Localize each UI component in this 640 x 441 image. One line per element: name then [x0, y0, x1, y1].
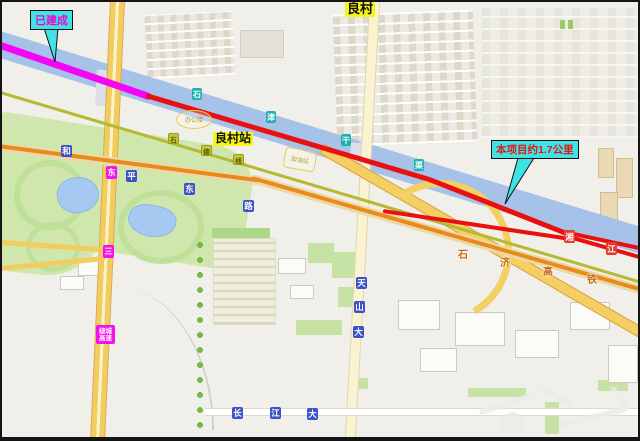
- building: [515, 330, 559, 358]
- canal-name-badge: 渠: [414, 159, 424, 171]
- railway-name-badge: 德: [201, 145, 212, 156]
- village-label: 良村: [345, 2, 375, 17]
- gas-station-poi-label: 加油站: [290, 154, 309, 166]
- project-callout: 本项目约1.7公里: [491, 140, 579, 159]
- lawn: [468, 388, 526, 397]
- road-name-badge: 长: [232, 407, 243, 419]
- road-name-badge: 路: [243, 200, 254, 212]
- street-name-badge: 山: [354, 301, 365, 313]
- hsr-name-char: 高: [543, 263, 553, 278]
- building: [598, 148, 614, 178]
- tree-strip: [212, 228, 270, 238]
- office-poi: 办公楼: [176, 110, 212, 129]
- lawn: [308, 243, 334, 263]
- building: [60, 276, 84, 290]
- building: [616, 158, 633, 198]
- village-area-north-left: [144, 11, 235, 80]
- lawn: [568, 20, 573, 29]
- building: [420, 348, 457, 372]
- lawn: [296, 320, 342, 335]
- office-poi-label: 办公楼: [185, 115, 203, 124]
- railway-name-badge: 石: [168, 133, 179, 144]
- lawn: [545, 402, 559, 434]
- building: [290, 285, 314, 299]
- road-shield-badge: 湘: [564, 230, 575, 243]
- watermark: [500, 412, 524, 436]
- village-area-north-center: [333, 10, 478, 147]
- ring-road-badge: 三: [103, 245, 114, 258]
- built-callout: 已建成: [30, 10, 73, 30]
- tree-row: [193, 238, 207, 438]
- street-name-badge: 大: [353, 326, 364, 338]
- railway-name-badge: 线: [233, 154, 244, 165]
- ring-road-badge: 东: [106, 166, 117, 179]
- hsr-name-char: 济: [500, 254, 510, 269]
- hsr-name-char: 石: [458, 246, 468, 261]
- gas-station-poi: 加油站: [282, 146, 317, 172]
- road-name-badge: 平: [126, 170, 137, 182]
- street-name-badge: 天: [356, 277, 367, 289]
- building: [278, 258, 306, 274]
- expressway-name-badge: 绕城高速: [96, 325, 115, 344]
- road-name-badge: 东: [184, 183, 195, 195]
- map-canvas[interactable]: 石 津 干 渠 石 德 线 石 济 高 铁 和 平 东 路 东 三 绕城高速 天…: [0, 0, 640, 441]
- station-label: 良村站: [213, 132, 253, 146]
- hsr-name-char: 铁: [587, 271, 597, 286]
- road-name-badge: 大: [307, 408, 318, 420]
- residential-compound: [213, 238, 276, 325]
- canal-name-badge: 石: [192, 88, 202, 100]
- road-shield-badge: 江: [606, 242, 617, 255]
- road-name-badge: 江: [270, 407, 281, 419]
- canal-name-badge: 干: [341, 134, 351, 146]
- lawn: [560, 20, 565, 29]
- road-name-badge: 和: [61, 145, 72, 157]
- village-area-small: [240, 30, 284, 58]
- building: [608, 345, 638, 383]
- canal-name-badge: 津: [266, 111, 276, 123]
